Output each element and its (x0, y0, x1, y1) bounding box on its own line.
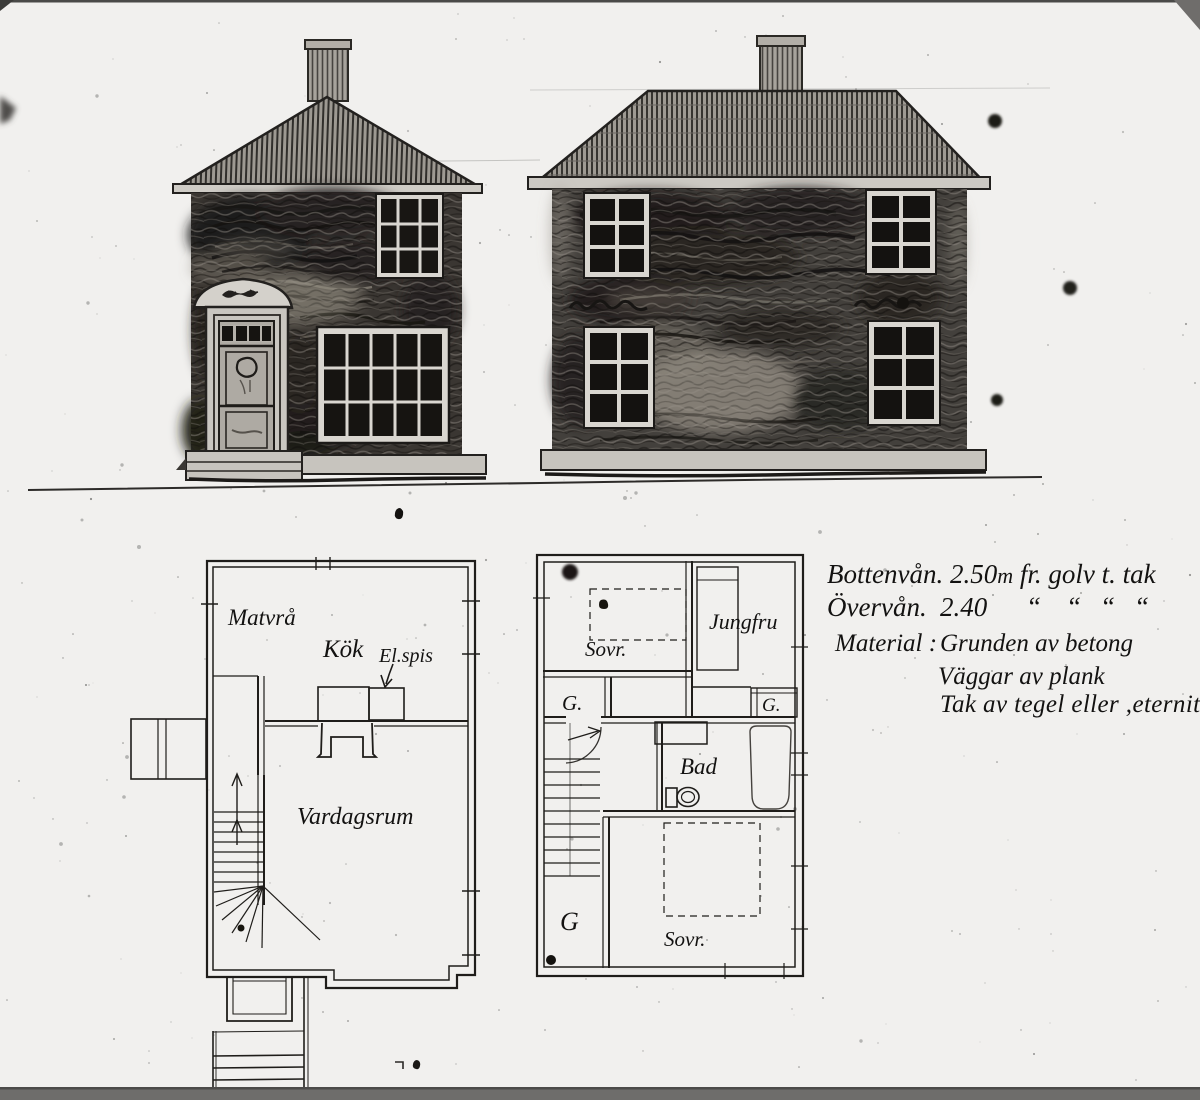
svg-text:Material :Grunden av betong: Material :Grunden av betong (834, 630, 1133, 657)
svg-text:Matvrå: Matvrå (227, 605, 296, 630)
svg-text:Kök: Kök (322, 636, 364, 663)
svg-text:Bad: Bad (680, 754, 718, 779)
svg-text:Vardagsrum: Vardagsrum (297, 804, 413, 830)
svg-text:G: G (560, 907, 579, 936)
svg-text:G.: G. (562, 691, 582, 715)
svg-text:Tak av tegel eller ,eternit: Tak av tegel eller ,eternit (940, 691, 1200, 718)
svg-text:Bottenvån. 2.50m fr. golv t. t: Bottenvån. 2.50m fr. golv t. tak (827, 559, 1157, 589)
svg-text:Sovr.: Sovr. (585, 637, 626, 661)
svg-text:Jungfru: Jungfru (709, 609, 777, 634)
svg-text:Sovr.: Sovr. (664, 927, 705, 951)
svg-text:Väggar av plank: Väggar av plank (938, 663, 1106, 690)
svg-text:G.: G. (762, 695, 780, 716)
svg-text:El.spis: El.spis (378, 645, 433, 667)
